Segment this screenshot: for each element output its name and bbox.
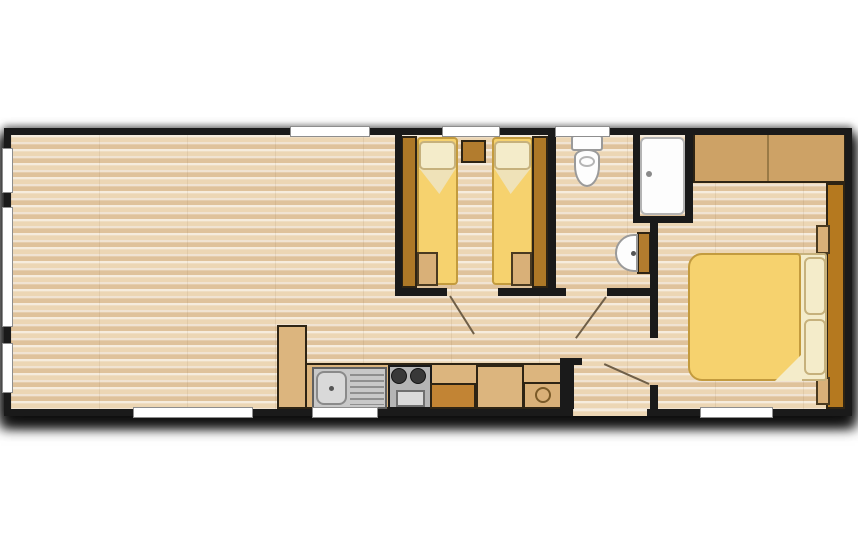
wall-hall-bedroom-stub [650,385,658,409]
window-top-wc [555,126,610,137]
wall-shower-left [633,135,640,223]
shower-door-handle [646,171,652,177]
sink-drainer-board [350,374,384,405]
wall-wc-bedroom [650,223,658,290]
water-heater-ring [535,387,551,403]
double-bedroom-wardrobe-divider [767,135,769,181]
window-left-end-1 [2,148,13,193]
window-top-lounge [290,126,370,137]
wall-kitchen-hall [560,358,574,409]
window-top-twin-bedroom [442,126,500,137]
wall-hall-bedroom-upper [650,290,658,338]
wall-twin-bottom-a [395,288,447,296]
wall-shower-right [685,135,693,223]
double-bedroom-wardrobe [693,133,846,183]
wall-wc-bottom-left [548,288,566,296]
twin-bedside-cabinet [461,140,486,163]
wall-perimeter-top [4,128,852,135]
kitchen-cabinet-dark [430,383,476,409]
entrance-door-opening [573,409,647,416]
kitchen-cabinet-mid [476,365,524,409]
window-bottom-kitchen [312,407,378,418]
wall-perimeter-right [845,128,852,416]
window-left-end-3 [2,343,13,393]
wall-twin-right [548,135,556,296]
wall-kitchen-hall-stub [560,358,582,365]
window-bottom-lounge [133,407,253,418]
wall-twin-left [395,135,402,296]
sink-drain [329,386,334,391]
bedside-shelf-top [816,225,830,254]
double-bed-pillow-2 [804,319,826,375]
page-background [0,0,858,536]
double-bed-pillow-1 [804,257,826,315]
twin-bedroom-wardrobe-left [401,136,417,288]
oven-door [396,390,425,407]
cooker-burner-2 [410,368,426,384]
window-bottom-double-bedroom [700,407,773,418]
double-bed-duvet [688,253,801,381]
twin-bed-2-pillow [494,141,531,170]
twin-bedroom-wardrobe-right [532,136,548,288]
kitchen-tall-unit [277,325,307,409]
bedside-shelf-bottom [816,377,830,405]
basin-tap [631,251,636,256]
twin-bed-1-pillow [419,141,456,170]
window-left-end-2 [2,207,13,327]
twin-bed-1-foot-chest [417,252,438,286]
double-bedroom-dresser-run [826,183,845,409]
toilet-seat-ring [579,156,595,167]
basin-vanity [637,232,651,274]
twin-bed-2-foot-chest [511,252,532,286]
wall-shower-bottom [633,216,693,223]
cooker-burner-1 [391,368,407,384]
floorplan [4,128,852,416]
